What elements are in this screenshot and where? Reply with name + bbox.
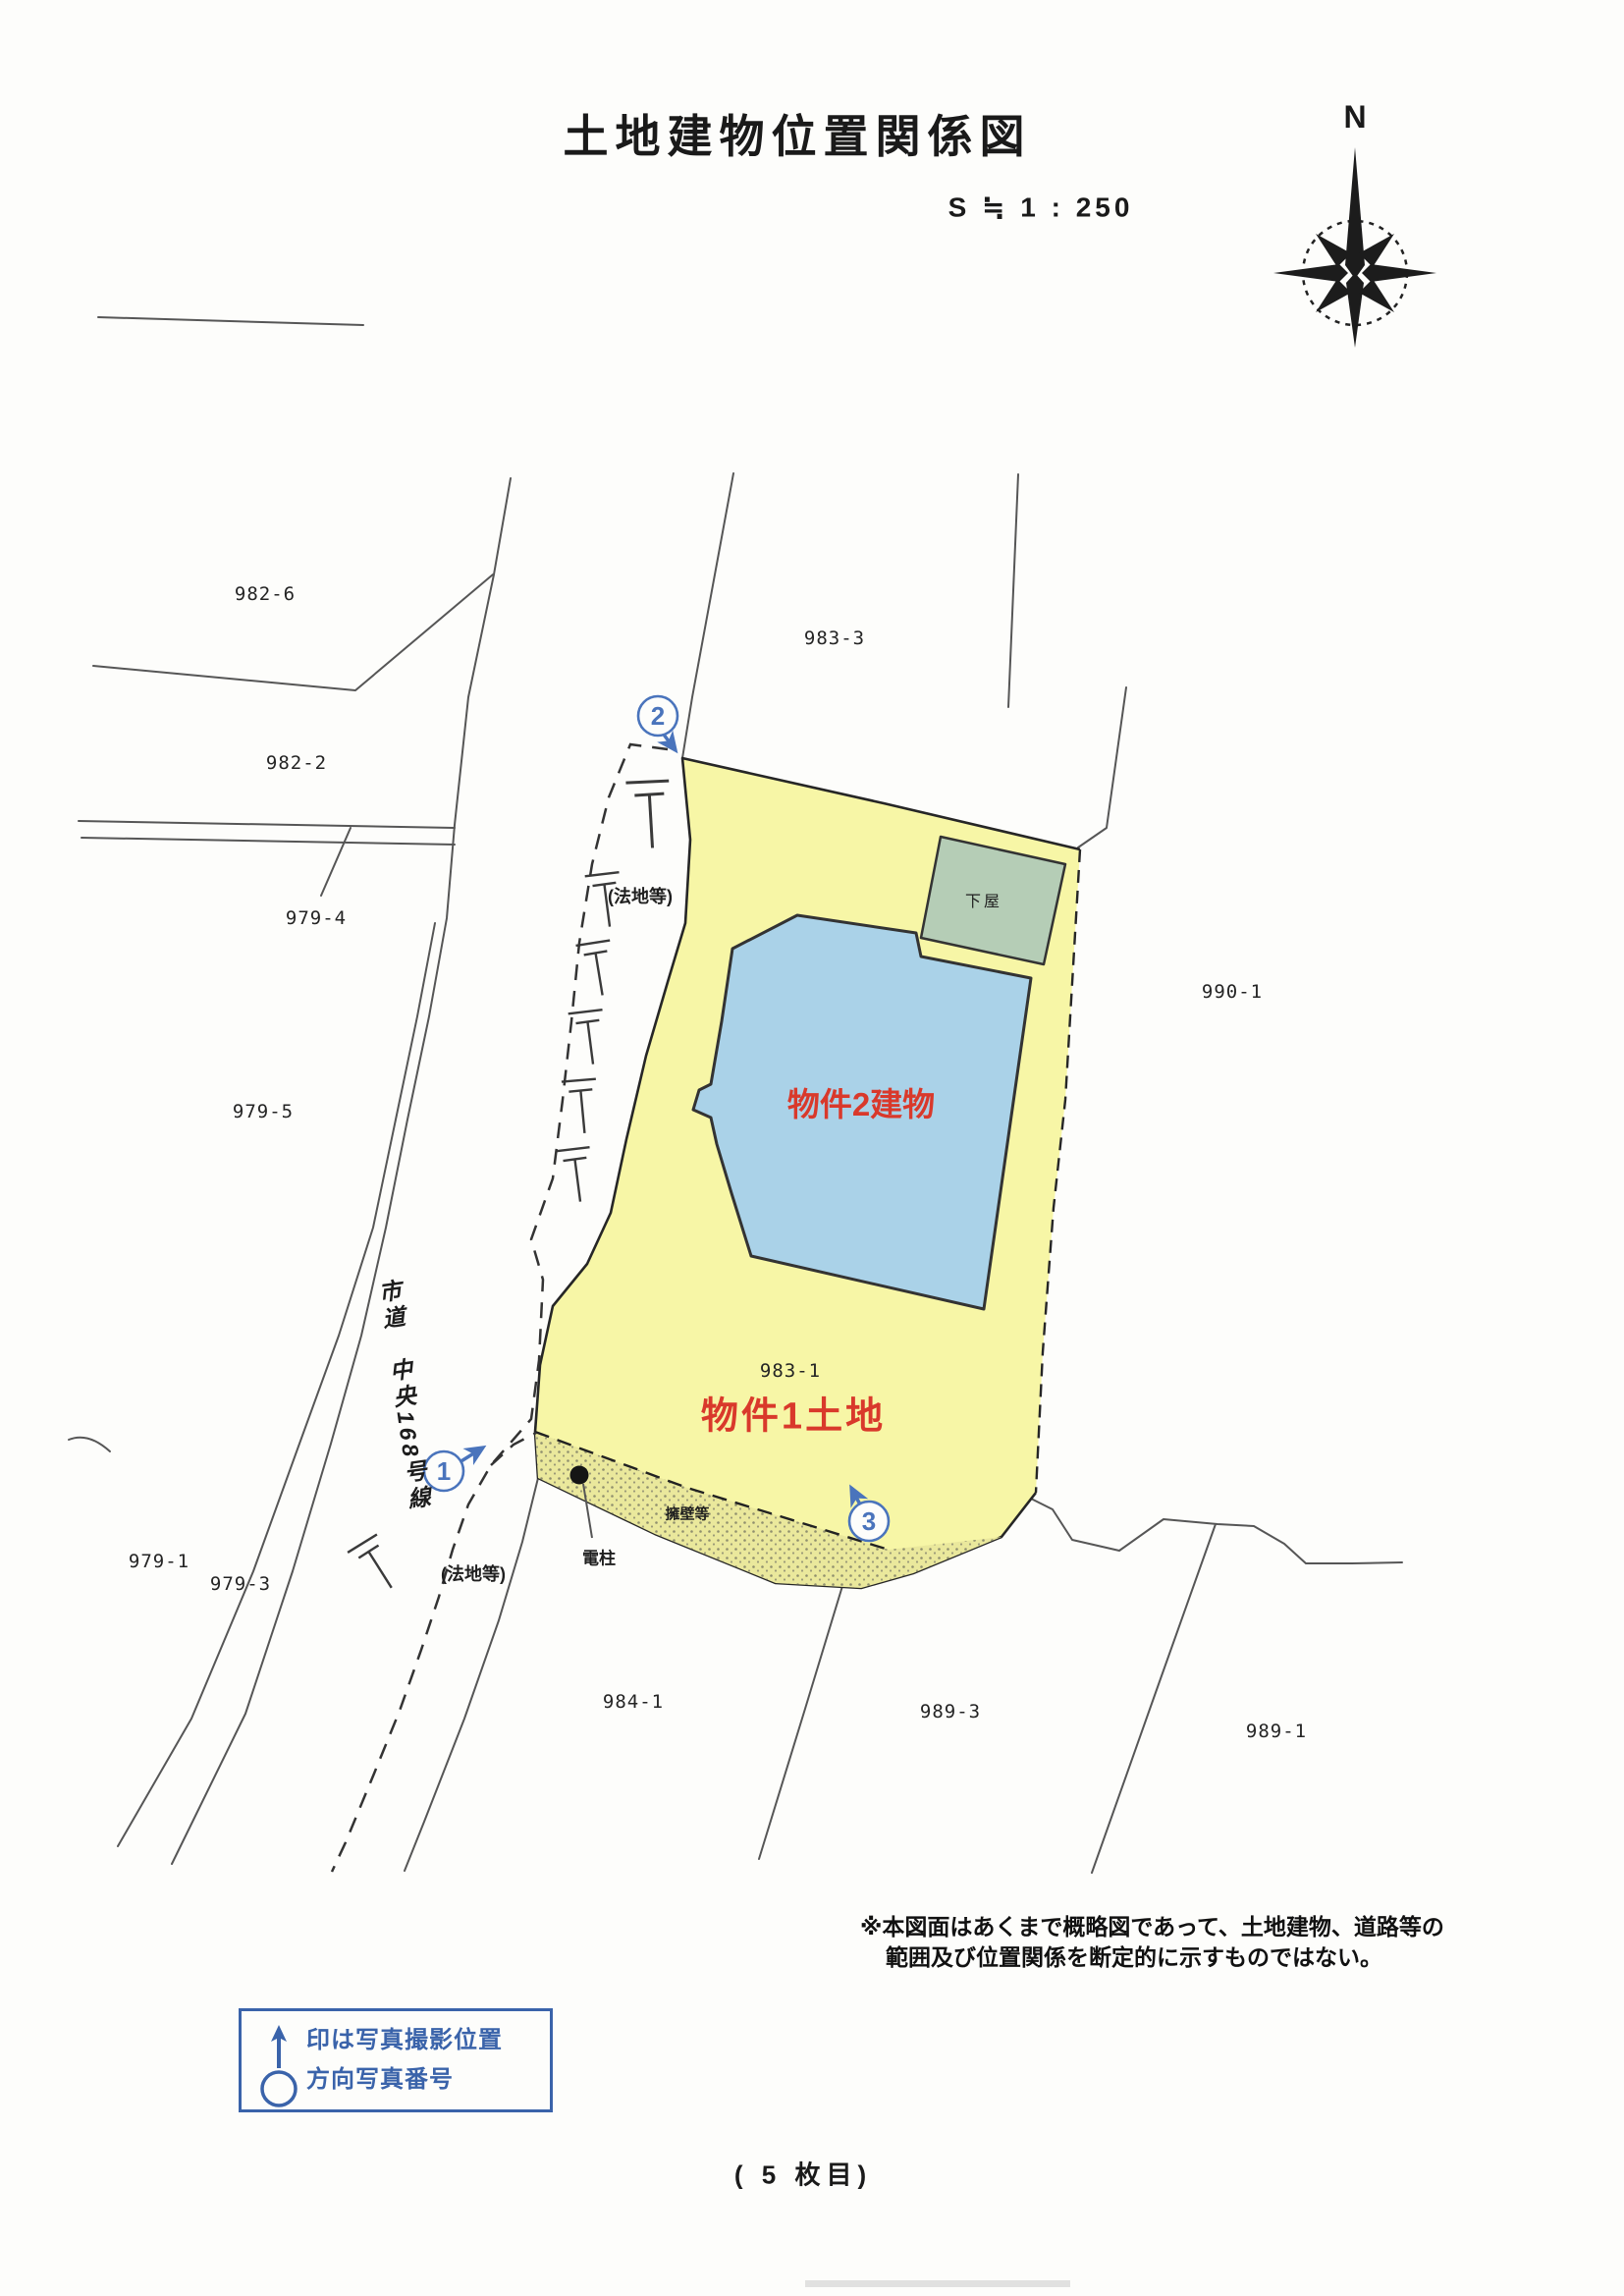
page-number: ( 5 枚目): [734, 2156, 872, 2192]
disclaimer-line2: 範囲及び位置関係を断定的に示すものではない。: [860, 1942, 1444, 1973]
leader-979-4: [321, 828, 351, 896]
property2-building-label: 物件2建物: [787, 1078, 935, 1125]
photo-num-1: 1: [437, 1456, 451, 1486]
legend-icons: [242, 2011, 306, 2115]
slope-land-label-upper: (法地等): [608, 883, 673, 908]
parcel-label-983-3: 983-3: [804, 628, 865, 649]
road-west-edge: [172, 478, 511, 1864]
boundary-984-1-989-3: [759, 1586, 842, 1859]
legend-photo-circle-icon: [262, 2072, 296, 2105]
boundary-983-3-east: [1008, 474, 1018, 707]
boundary-990-1-south: [1033, 1500, 1402, 1563]
photo-num-2: 2: [651, 701, 665, 731]
parcel-label-979-4: 979-4: [286, 907, 347, 929]
scale-text: S ≒ 1 : 250: [948, 191, 1134, 224]
disclaimer-note: ※本図面はあくまで概略図であって、土地建物、道路等の 範囲及び位置関係を断定的に…: [860, 1912, 1444, 1973]
boundary-983-3-west: [682, 473, 733, 758]
legend-box: 印は写真撮影位置 方向写真番号: [239, 2008, 553, 2112]
legend-text: 印は写真撮影位置 方向写真番号: [306, 2021, 503, 2100]
compass-rose-icon: N: [1273, 99, 1436, 348]
lane-south-line: [81, 838, 455, 845]
utility-pole-label: 電柱: [582, 1545, 616, 1569]
parcel-label-989-3: 989-3: [920, 1701, 981, 1722]
site-plan-page: 1 2 3 N: [0, 0, 1624, 2296]
photo-num-3: 3: [862, 1506, 876, 1536]
edge-arc-left: [69, 1438, 110, 1451]
shed-label: 下屋: [965, 888, 1002, 911]
compass-north-label: N: [1343, 99, 1366, 135]
parcel-label-979-5: 979-5: [233, 1101, 294, 1122]
boundary-989-3-989-1: [1092, 1524, 1216, 1873]
disclaimer-line1: ※本図面はあくまで概略図であって、土地建物、道路等の: [860, 1912, 1444, 1942]
slope-land-label-lower: (法地等): [441, 1560, 506, 1586]
parcel-label-979-3: 979-3: [210, 1573, 271, 1595]
boundary-984-1-east: [405, 1478, 538, 1871]
retaining-wall-label: 擁壁等: [665, 1503, 709, 1524]
photo-arrow-1: [460, 1448, 483, 1462]
utility-pole-dot: [570, 1466, 589, 1485]
page-title: 土地建物位置関係図: [564, 101, 1032, 166]
parcel-label-979-1: 979-1: [129, 1551, 189, 1572]
parcel-label-982-2: 982-2: [266, 752, 327, 774]
parcel-label-982-6: 982-6: [235, 583, 296, 605]
parcel-label-990-1: 990-1: [1202, 981, 1263, 1003]
parcel-label-984-1: 984-1: [603, 1691, 664, 1713]
legend-line1: 印は写真撮影位置: [306, 2021, 503, 2060]
boundary-982-6-north: [98, 317, 363, 325]
scan-artifact: [805, 2280, 1070, 2287]
property1-land-label: 物件1土地: [701, 1386, 886, 1440]
lane-north-line: [79, 821, 455, 828]
photo-marker-1: 1: [424, 1448, 483, 1491]
photo-marker-2: 2: [638, 696, 677, 750]
boundary-990-1-west: [1078, 687, 1126, 847]
parcel-label-989-1: 989-1: [1246, 1721, 1307, 1742]
legend-line2: 方向写真番号: [306, 2060, 503, 2100]
parcel-label-983-1: 983-1: [760, 1360, 821, 1382]
